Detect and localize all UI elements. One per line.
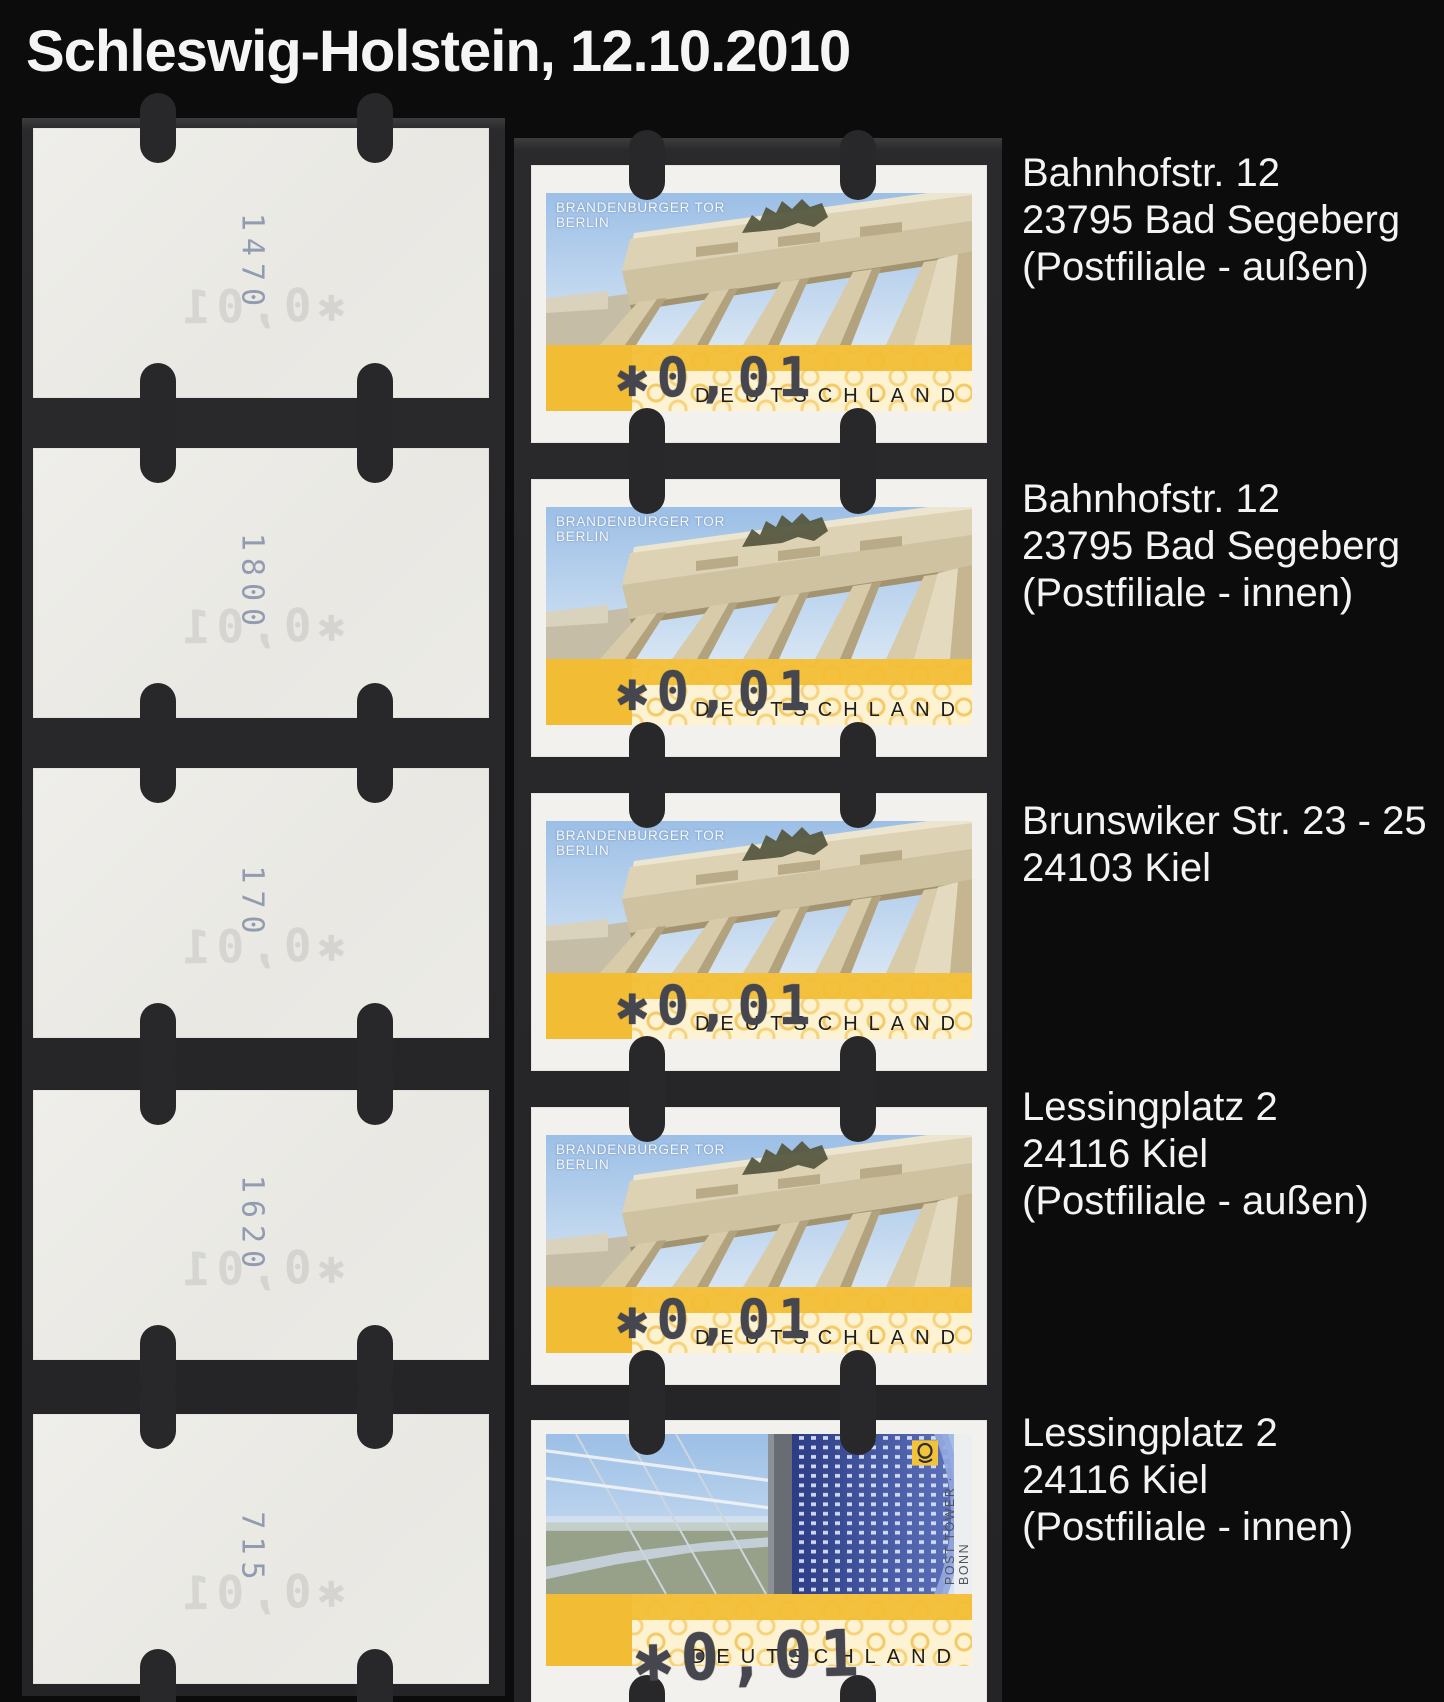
motif-title: BRANDENBURGER TOR BERLIN: [556, 200, 725, 230]
punch-notch: [357, 93, 393, 163]
address-label: Bahnhofstr. 12 23795 Bad Segeberg (Postf…: [1022, 150, 1400, 291]
address-line: 23795 Bad Segeberg: [1022, 523, 1400, 570]
address-line: (Postfiliale - innen): [1022, 1504, 1353, 1551]
denomination-value: ✱0,01: [633, 1617, 868, 1697]
address-line: Brunswiker Str. 23 - 25: [1022, 798, 1427, 845]
motif-line: BERLIN: [556, 529, 725, 544]
address-line: Lessingplatz 2: [1022, 1084, 1369, 1131]
address-line: (Postfiliale - innen): [1022, 570, 1400, 617]
post-tower-photo: POST TOWER · BONN: [546, 1434, 972, 1594]
address-line: 24103 Kiel: [1022, 845, 1427, 892]
brandenburg-gate-photo: BRANDENBURGER TOR BERLIN: [546, 507, 972, 659]
punch-notch: [357, 1649, 393, 1702]
address-label: Lessingplatz 2 24116 Kiel (Postfiliale -…: [1022, 1410, 1353, 1551]
post-tower-illustration: [546, 1434, 972, 1594]
punch-notch: [357, 413, 393, 483]
denomination-value: ✱0,01: [616, 660, 819, 723]
value-band: DEUTSCHLAND ✱0,01: [546, 1594, 972, 1666]
motif-line: BRANDENBURGER TOR: [556, 1142, 725, 1157]
address-label: Bahnhofstr. 12 23795 Bad Segeberg (Postf…: [1022, 476, 1400, 617]
back-showthrough-value: ✱0,01: [176, 1564, 345, 1621]
address-line: Lessingplatz 2: [1022, 1410, 1353, 1457]
punch-notch: [140, 1649, 176, 1702]
punch-notch: [629, 1072, 665, 1142]
punch-notch: [140, 413, 176, 483]
back-showthrough-value: ✱0,01: [176, 918, 345, 975]
post-horn-icon: [912, 1440, 938, 1465]
punch-notch: [357, 1379, 393, 1449]
motif-title: BRANDENBURGER TOR BERLIN: [556, 1142, 725, 1172]
address-line: (Postfiliale - außen): [1022, 1178, 1369, 1225]
punch-notch: [840, 1385, 876, 1455]
punch-notch: [629, 758, 665, 828]
punch-notch: [629, 1385, 665, 1455]
denomination-value: ✱0,01: [616, 1288, 819, 1351]
stamp-brandenburger-tor: BRANDENBURGER TOR BERLIN DEUTSCHLAND ✱0,…: [531, 165, 987, 443]
stamp-brandenburger-tor: BRANDENBURGER TOR BERLIN DEUTSCHLAND ✱0,…: [531, 479, 987, 757]
back-showthrough-value: ✱0,01: [176, 598, 345, 655]
punch-notch: [629, 444, 665, 514]
punch-notch: [357, 733, 393, 803]
album-page: Schleswig-Holstein, 12.10.2010 1470 ✱0,0…: [0, 0, 1444, 1702]
motif-title: BRANDENBURGER TOR BERLIN: [556, 514, 725, 544]
denomination-value: ✱0,01: [616, 346, 819, 409]
punch-notch: [357, 1055, 393, 1125]
stamp-back: 170 ✱0,01: [33, 768, 489, 1038]
stamp-back: 1470 ✱0,01: [33, 128, 489, 398]
address-line: 24116 Kiel: [1022, 1457, 1353, 1504]
motif-line: BRANDENBURGER TOR: [556, 514, 725, 529]
motif-line: BERLIN: [556, 843, 725, 858]
punch-notch: [840, 130, 876, 200]
address-line: 24116 Kiel: [1022, 1131, 1369, 1178]
motif-title: BRANDENBURGER TOR BERLIN: [556, 828, 725, 858]
motif-line: BRANDENBURGER TOR: [556, 828, 725, 843]
back-showthrough-value: ✱0,01: [176, 1240, 345, 1297]
punch-notch: [140, 93, 176, 163]
stamp-brandenburger-tor: BRANDENBURGER TOR BERLIN DEUTSCHLAND ✱0,…: [531, 793, 987, 1071]
stamp-back: 1620 ✱0,01: [33, 1090, 489, 1360]
stamp-side-inscription: POST TOWER · BONN: [943, 1440, 971, 1585]
address-line: 23795 Bad Segeberg: [1022, 197, 1400, 244]
band-left-block: [546, 1594, 632, 1666]
page-title: Schleswig-Holstein, 12.10.2010: [26, 18, 850, 85]
stamp-back: 1800 ✱0,01: [33, 448, 489, 718]
value-band: DEUTSCHLAND ✱0,01: [546, 973, 972, 1039]
back-showthrough-value: ✱0,01: [176, 278, 345, 335]
motif-line: BERLIN: [556, 215, 725, 230]
value-band: DEUTSCHLAND ✱0,01: [546, 345, 972, 411]
punch-notch: [629, 130, 665, 200]
punch-notch: [140, 733, 176, 803]
stamp-back: 715 ✱0,01: [33, 1414, 489, 1684]
denomination-value: ✱0,01: [616, 974, 819, 1037]
punch-notch: [840, 1072, 876, 1142]
address-line: Bahnhofstr. 12: [1022, 476, 1400, 523]
brandenburg-gate-photo: BRANDENBURGER TOR BERLIN: [546, 193, 972, 345]
value-band: DEUTSCHLAND ✱0,01: [546, 659, 972, 725]
brandenburg-gate-photo: BRANDENBURGER TOR BERLIN: [546, 821, 972, 973]
punch-notch: [140, 1379, 176, 1449]
address-line: Bahnhofstr. 12: [1022, 150, 1400, 197]
motif-line: BRANDENBURGER TOR: [556, 200, 725, 215]
address-label: Brunswiker Str. 23 - 25 24103 Kiel: [1022, 798, 1427, 892]
motif-line: BERLIN: [556, 1157, 725, 1172]
address-line: (Postfiliale - außen): [1022, 244, 1400, 291]
stamp-post-tower-bonn: POST TOWER · BONN DEUTSCHLAND ✱0,01: [531, 1420, 987, 1702]
brandenburg-gate-photo: BRANDENBURGER TOR BERLIN: [546, 1135, 972, 1287]
value-band: DEUTSCHLAND ✱0,01: [546, 1287, 972, 1353]
punch-notch: [840, 444, 876, 514]
address-label: Lessingplatz 2 24116 Kiel (Postfiliale -…: [1022, 1084, 1369, 1225]
punch-notch: [140, 1055, 176, 1125]
stamp-brandenburger-tor: BRANDENBURGER TOR BERLIN DEUTSCHLAND ✱0,…: [531, 1107, 987, 1385]
punch-notch: [840, 758, 876, 828]
